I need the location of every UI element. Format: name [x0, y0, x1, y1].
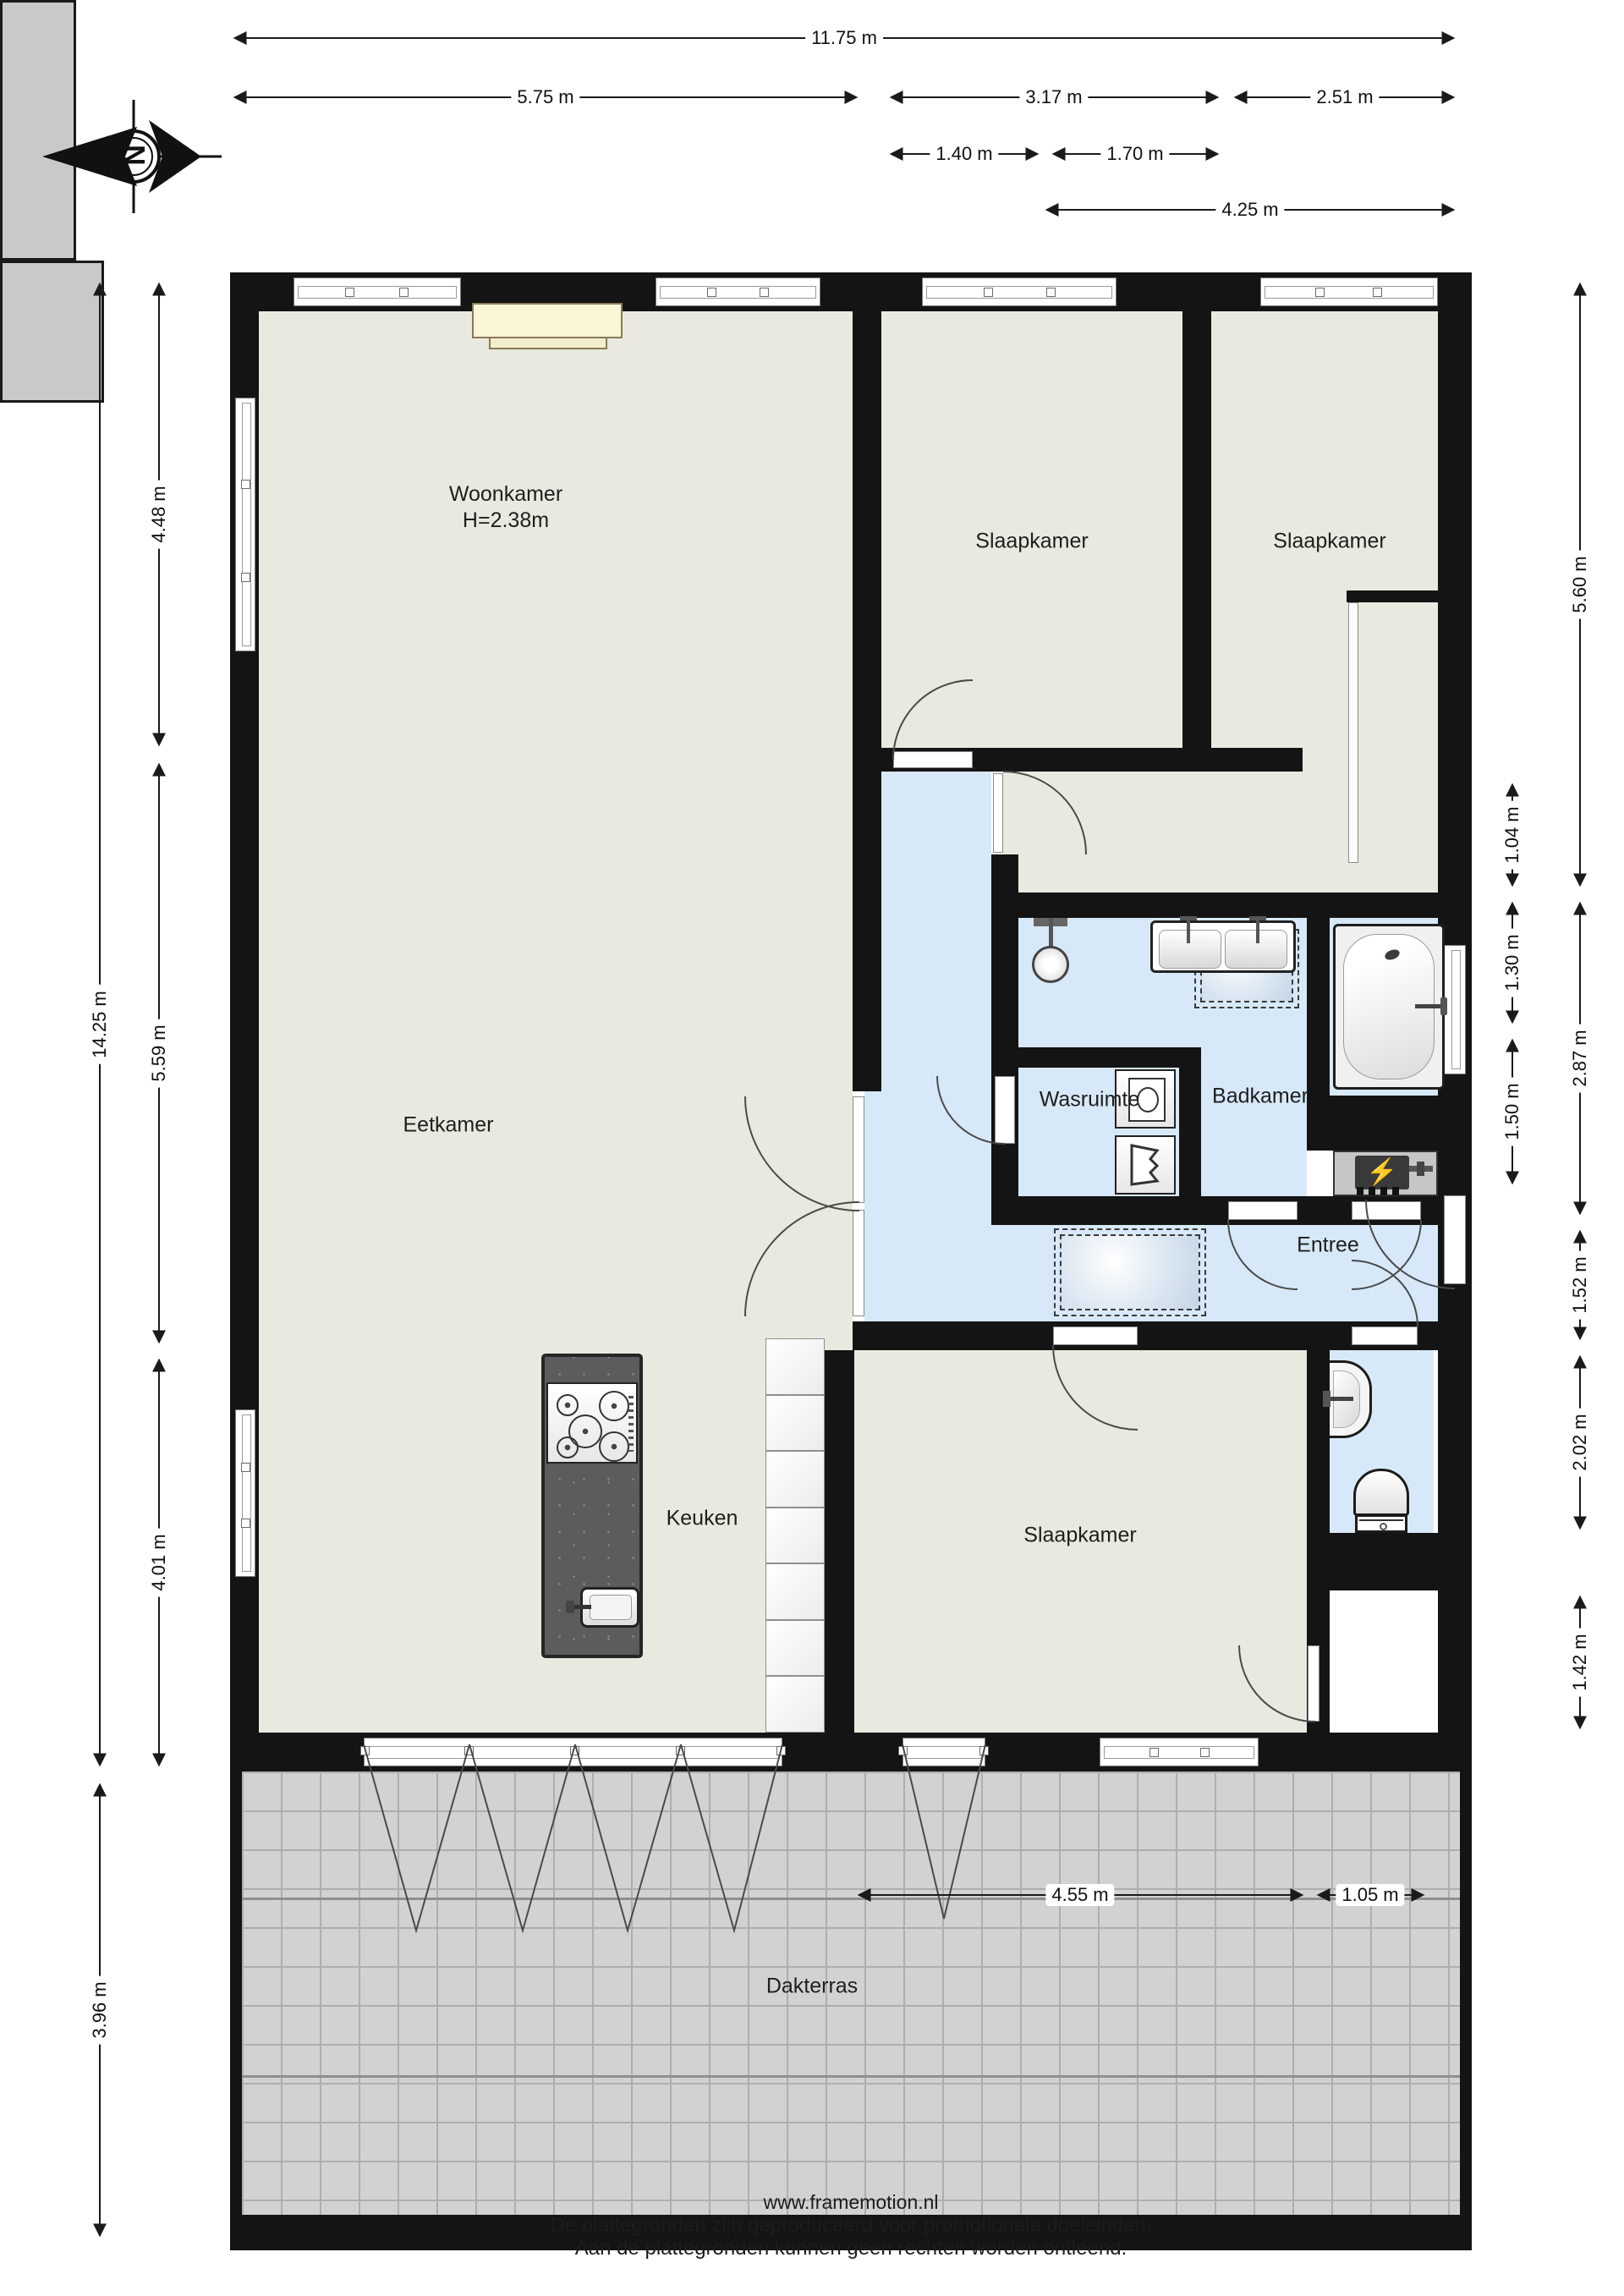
wall-wasruimte-top — [1018, 1047, 1179, 1068]
wall-keuken-slaapkamer — [825, 1350, 854, 1733]
sideboard-step — [489, 338, 607, 349]
front-door-frame — [1444, 1195, 1466, 1284]
wall-slaapkamer1-slaapkamer2 — [1182, 272, 1211, 748]
dim-top-window2: 1.70 m — [1100, 143, 1169, 165]
dim-left-woonkamer: 4.48 m — [148, 480, 170, 548]
label-badkamer: Badkamer — [1212, 1083, 1309, 1109]
terrace-edge-right — [1460, 1771, 1472, 2250]
dim-top-total: 11.75 m — [805, 27, 883, 49]
hall-lower — [864, 1091, 991, 1321]
door-badkamer — [1228, 1201, 1298, 1220]
dim-left-keuken: 4.01 m — [148, 1528, 170, 1596]
terrace-joint-line-1 — [242, 1898, 1460, 1900]
bathtub — [1333, 924, 1445, 1090]
window-left-eetkamer — [235, 1409, 255, 1577]
dim-top-right-section: 4.25 m — [1215, 199, 1284, 221]
dim-right-inner-3: 1.50 m — [1501, 1077, 1523, 1145]
door-heater-closet — [1352, 1201, 1421, 1220]
door-slaapkamer1 — [893, 751, 973, 768]
dim-right-entree: 1.52 m — [1569, 1250, 1591, 1319]
floorplan-page: ⚡ — [0, 0, 1624, 2296]
footer-url: www.framemotion.nl — [763, 2191, 938, 2214]
label-slaapkamer-top-right: Slaapkamer — [1273, 528, 1385, 554]
label-eetkamer: Eetkamer — [403, 1112, 494, 1138]
dim-left-eetkamer: 5.59 m — [148, 1019, 170, 1087]
window-left-woonkamer — [235, 398, 255, 651]
faucet-left — [1187, 918, 1190, 943]
dim-bottom-slaapkamer: 4.55 m — [1045, 1884, 1114, 1906]
dim-bottom-toilet: 1.05 m — [1336, 1884, 1404, 1906]
door-slaapkamer-bottom — [1053, 1327, 1138, 1345]
sideboard — [472, 303, 623, 338]
door-closet-bottom-right — [1308, 1645, 1319, 1722]
faucet-right — [1256, 918, 1259, 943]
island-sink — [580, 1587, 639, 1628]
cooktop — [546, 1382, 638, 1464]
label-keuken: Keuken — [667, 1505, 738, 1531]
wall-woonkamer-hall — [853, 272, 881, 1091]
door-corridor-slaapkamer2 — [993, 773, 1003, 853]
toilet-tank — [1355, 1514, 1407, 1533]
label-slaapkamer-top-middle: Slaapkamer — [975, 528, 1088, 554]
terrace-edge-left — [230, 1771, 242, 2250]
window-top-woonkamer-2 — [656, 277, 820, 306]
label-woonkamer: Woonkamer H=2.38m — [449, 481, 562, 535]
water-heater: ⚡ — [1333, 1151, 1438, 1196]
dim-left-terras: 3.96 m — [89, 1975, 111, 2044]
dim-right-toilet: 2.02 m — [1569, 1408, 1591, 1476]
dim-right-closet: 1.42 m — [1569, 1628, 1591, 1696]
label-slaapkamer-bottom: Slaapkamer — [1023, 1522, 1136, 1548]
toilet — [1353, 1469, 1409, 1533]
double-sink-counter — [1150, 920, 1296, 973]
dim-left-total: 14.25 m — [89, 985, 111, 1064]
dim-top-window1: 1.40 m — [930, 143, 998, 165]
door-french-top — [853, 1096, 864, 1203]
dim-right-inner-1: 1.04 m — [1501, 800, 1523, 869]
terrace-joint-line-2 — [242, 2075, 1460, 2078]
dim-right-slaapkamer2: 5.60 m — [1569, 550, 1591, 618]
dim-right-badkamer: 2.87 m — [1569, 1024, 1591, 1092]
footer-disclaimer-1: De plattegronden zijn geproduceerd voor … — [550, 2214, 1151, 2238]
door-wasruimte — [995, 1076, 1015, 1144]
wall-tub-partition — [1307, 918, 1330, 1096]
window-top-slaapkamer1 — [922, 277, 1116, 306]
entree-rug-dashed — [1054, 1228, 1206, 1316]
dim-right-inner-2: 1.30 m — [1501, 928, 1523, 997]
shower-head-disc — [1032, 946, 1069, 983]
window-top-slaapkamer2 — [1260, 277, 1438, 306]
door-french-bottom — [853, 1210, 864, 1316]
heater-bolt-icon: ⚡ — [1366, 1158, 1397, 1186]
compass-north-letter: N — [118, 145, 151, 166]
closet-slaapkamer-top-right — [0, 0, 76, 261]
door-toilet — [1352, 1327, 1418, 1345]
label-entree: Entree — [1297, 1232, 1359, 1258]
toilet-sink — [1330, 1360, 1372, 1438]
wall-tub-counter-band — [1307, 1096, 1451, 1151]
dim-top-slaapkamer1: 3.17 m — [1019, 86, 1088, 108]
window-bottom-slaapkamer — [1100, 1738, 1259, 1766]
wall-above-closet-top-right — [1347, 590, 1438, 602]
dim-top-slaapkamer2: 2.51 m — [1310, 86, 1379, 108]
closet-bottom-right — [0, 261, 104, 403]
kitchen-cabinets — [765, 1338, 825, 1733]
label-dakterras: Dakterras — [766, 1973, 858, 1999]
label-wasruimte: Wasruimte — [1040, 1086, 1140, 1112]
dryer — [1115, 1135, 1176, 1195]
window-top-woonkamer-1 — [294, 277, 461, 306]
closet-sliding-door — [1348, 602, 1358, 863]
wall-toilet-bottom-band — [1307, 1533, 1451, 1590]
footer-disclaimer-2: Aan de plattegronden kunnen geen rechten… — [575, 2237, 1127, 2260]
cooktop-controls — [628, 1396, 634, 1452]
dim-top-woonkamer: 5.75 m — [511, 86, 579, 108]
wall-badkamer-top — [991, 893, 1472, 918]
door-slaapkamer-terrace — [903, 1738, 985, 1766]
hall-corridor — [881, 772, 991, 1091]
